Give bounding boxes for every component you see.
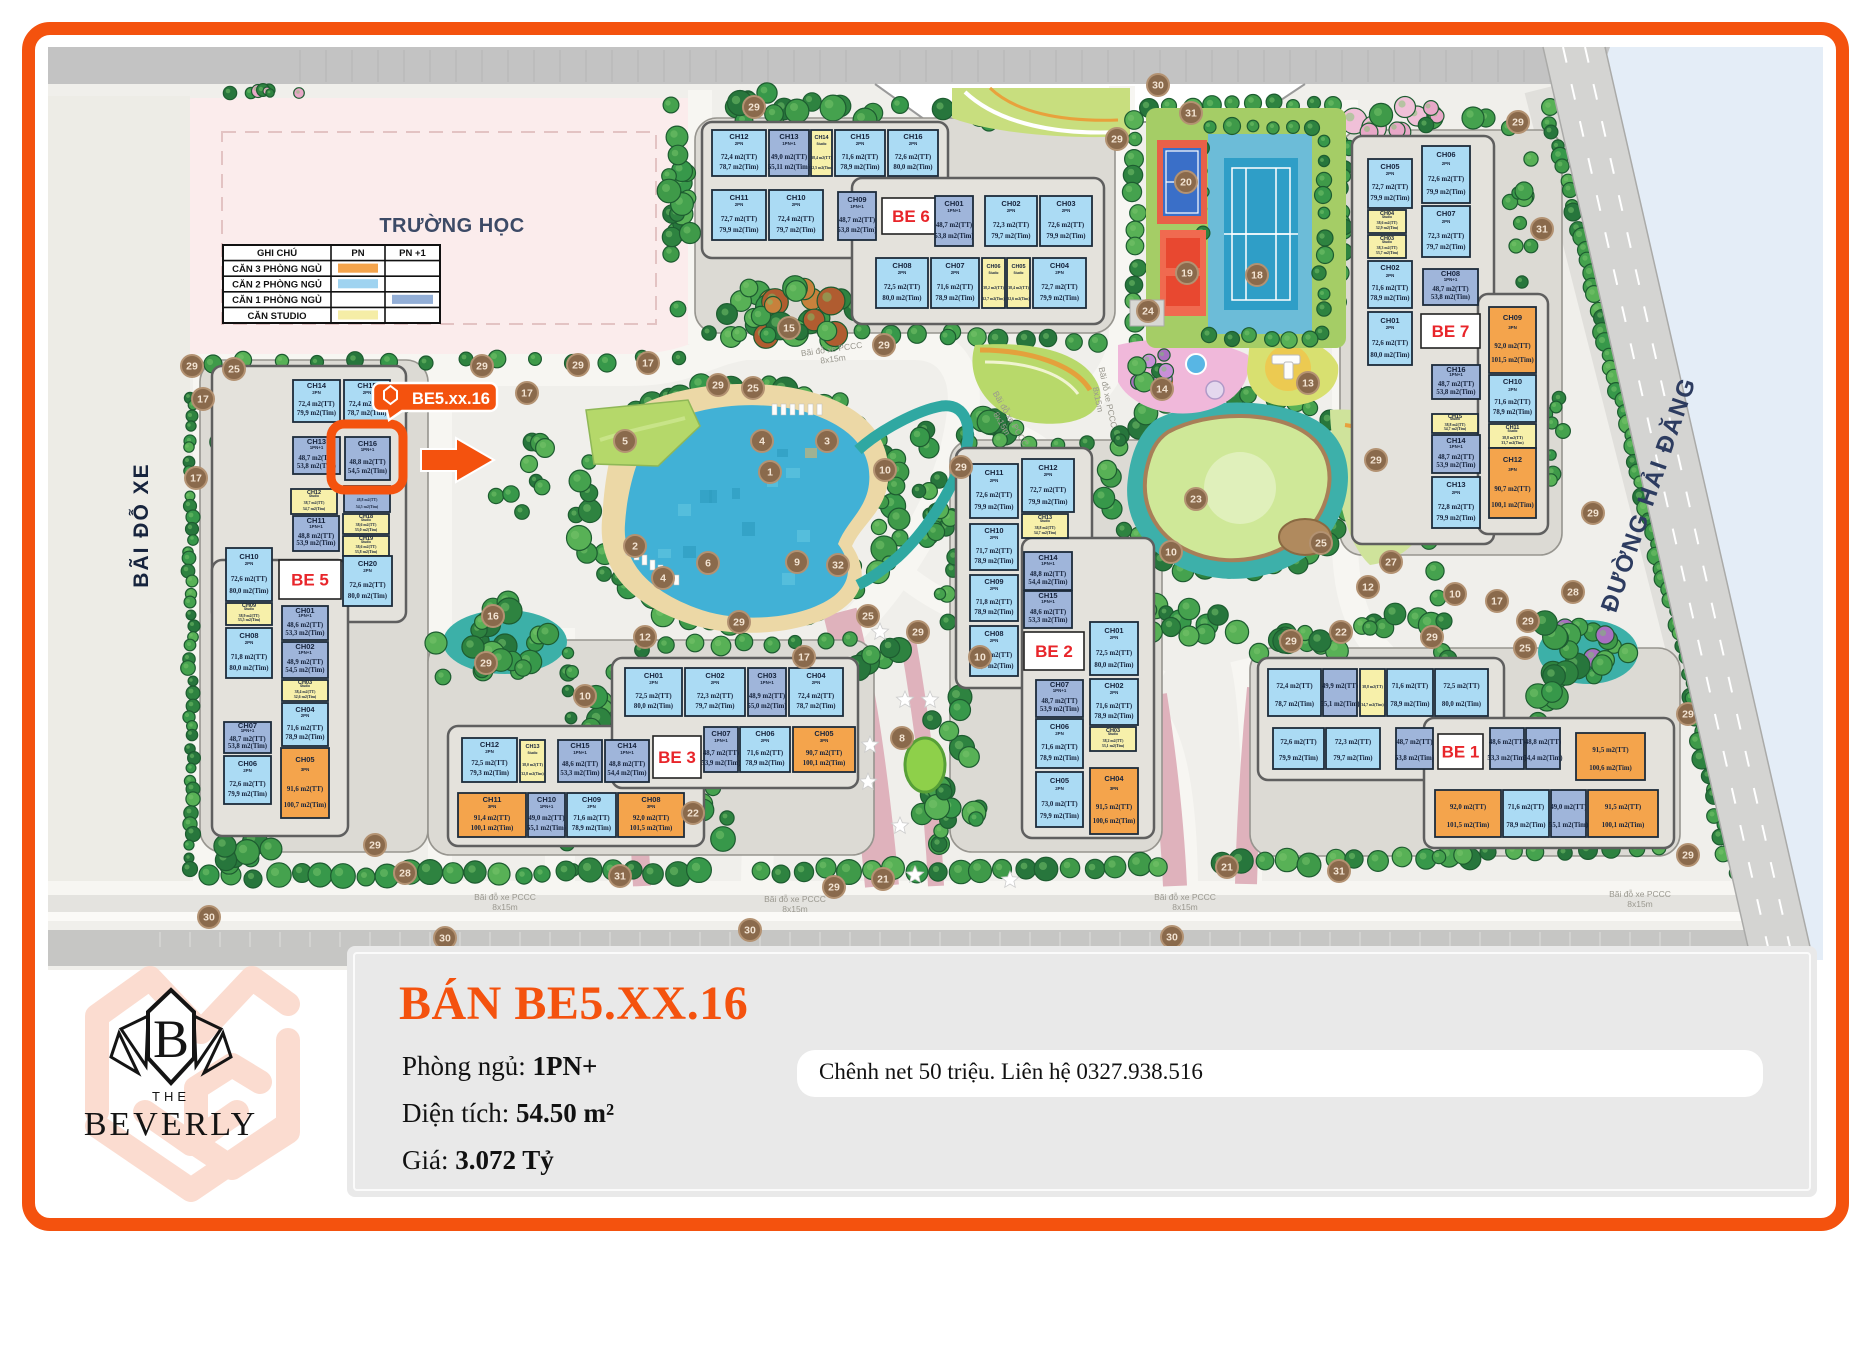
- svg-text:BE 1: BE 1: [1442, 743, 1480, 762]
- svg-text:10: 10: [974, 652, 986, 664]
- svg-text:91,6 m2(TT): 91,6 m2(TT): [287, 786, 323, 793]
- svg-text:72,4 m2(TT): 72,4 m2(TT): [298, 401, 334, 408]
- svg-text:48,7 m2(TT): 48,7 m2(TT): [936, 222, 972, 229]
- svg-text:48,7 m2(TT): 48,7 m2(TT): [839, 217, 875, 224]
- svg-text:1PN+1: 1PN+1: [361, 447, 375, 452]
- svg-text:CH05: CH05: [1380, 162, 1399, 171]
- svg-text:CH08: CH08: [641, 795, 660, 804]
- svg-text:53,3 m2(Tim): 53,3 m2(Tim): [1028, 617, 1067, 624]
- svg-text:32,8 m2(Tim): 32,8 m2(Tim): [521, 772, 544, 776]
- svg-text:2PN: 2PN: [245, 640, 254, 645]
- svg-text:71,6 m2(TT): 71,6 m2(TT): [1096, 703, 1132, 710]
- svg-text:Studio: Studio: [361, 540, 371, 544]
- svg-text:GHI CHÚ: GHI CHÚ: [257, 247, 297, 259]
- svg-text:49,0 m2(TT): 49,0 m2(TT): [771, 154, 807, 161]
- svg-text:29: 29: [480, 658, 492, 670]
- svg-text:2: 2: [632, 541, 638, 553]
- svg-text:72,3 m2(TT): 72,3 m2(TT): [1335, 739, 1371, 746]
- svg-text:54,5 m2(Tim): 54,5 m2(Tim): [285, 667, 324, 674]
- svg-text:38,3 m2(TT): 38,3 m2(TT): [1377, 246, 1398, 250]
- svg-text:CH12: CH12: [1038, 463, 1057, 472]
- svg-text:31: 31: [614, 871, 626, 883]
- svg-text:2PN: 2PN: [856, 141, 865, 146]
- svg-text:29: 29: [476, 361, 488, 373]
- svg-text:29: 29: [828, 882, 840, 894]
- svg-text:100,7 m2(Tim): 100,7 m2(Tim): [284, 802, 327, 809]
- svg-text:31: 31: [1333, 866, 1345, 878]
- svg-text:2PN: 2PN: [312, 390, 321, 395]
- svg-text:38,4 m2(TT): 38,4 m2(TT): [295, 690, 316, 694]
- svg-text:1PN+1: 1PN+1: [241, 728, 255, 733]
- svg-text:2PN: 2PN: [363, 568, 372, 573]
- svg-text:B: B: [153, 1009, 189, 1069]
- svg-text:48,7 m2(TT): 48,7 m2(TT): [1438, 454, 1474, 461]
- svg-text:101,5 m2(Tim): 101,5 m2(Tim): [1447, 822, 1490, 829]
- svg-text:79,9 m2(Tim): 79,9 m2(Tim): [1426, 189, 1465, 196]
- svg-text:78,9 m2(Tim): 78,9 m2(Tim): [1040, 755, 1079, 762]
- svg-text:21: 21: [877, 874, 889, 886]
- svg-text:48,6 m2(TT): 48,6 m2(TT): [1030, 609, 1066, 616]
- svg-text:CH10: CH10: [984, 526, 1003, 535]
- svg-text:38,7 m2(TT): 38,7 m2(TT): [304, 501, 325, 505]
- svg-text:17: 17: [197, 394, 209, 406]
- svg-text:CH09: CH09: [984, 577, 1003, 586]
- svg-text:80,0 m2(Tim): 80,0 m2(Tim): [1442, 701, 1481, 708]
- svg-text:Studio: Studio: [989, 271, 999, 275]
- svg-text:79,9 m2(Tim): 79,9 m2(Tim): [974, 504, 1013, 511]
- svg-text:49,0 m2(TT): 49,0 m2(TT): [528, 815, 564, 822]
- svg-text:38,6 m2(TT): 38,6 m2(TT): [356, 523, 377, 527]
- svg-text:48,6 m2(TT): 48,6 m2(TT): [1489, 739, 1525, 746]
- svg-text:38,6 m2(TT): 38,6 m2(TT): [1377, 221, 1398, 225]
- svg-text:8x15m: 8x15m: [782, 904, 808, 914]
- svg-text:CH11: CH11: [483, 795, 502, 804]
- svg-text:PN +1: PN +1: [399, 248, 426, 259]
- svg-text:55,1 m2(Tim): 55,1 m2(Tim): [527, 825, 566, 832]
- svg-text:72,7 m2(TT): 72,7 m2(TT): [721, 216, 757, 223]
- svg-text:Bãi đỗ xe PCCC: Bãi đỗ xe PCCC: [1154, 892, 1216, 902]
- svg-text:80,0 m2(Tim): 80,0 m2(Tim): [348, 593, 387, 600]
- svg-text:29: 29: [1512, 117, 1524, 129]
- svg-text:Studio: Studio: [1508, 429, 1518, 433]
- svg-text:CH04: CH04: [1050, 261, 1070, 270]
- svg-text:2PN: 2PN: [951, 270, 960, 275]
- svg-text:48,7 m2(TT): 48,7 m2(TT): [1438, 381, 1474, 388]
- svg-text:BE 5: BE 5: [291, 571, 329, 590]
- svg-text:2PN: 2PN: [1044, 472, 1053, 477]
- svg-text:BE5.xx.16: BE5.xx.16: [412, 390, 490, 408]
- svg-text:1PN+1: 1PN+1: [1444, 277, 1458, 282]
- svg-text:8x15m: 8x15m: [1172, 902, 1198, 912]
- svg-text:78,9 m2(Tim): 78,9 m2(Tim): [974, 558, 1013, 565]
- svg-text:78,9 m2(Tim): 78,9 m2(Tim): [840, 164, 879, 171]
- svg-text:CĂN STUDIO: CĂN STUDIO: [247, 311, 306, 322]
- svg-text:48,9 m2(TT): 48,9 m2(TT): [749, 693, 785, 700]
- svg-text:29: 29: [1370, 455, 1382, 467]
- svg-text:78,9 m2(Tim): 78,9 m2(Tim): [1390, 701, 1429, 708]
- svg-text:53,8 m2(Tim): 53,8 m2(Tim): [837, 227, 876, 234]
- svg-text:CH08: CH08: [239, 631, 258, 640]
- svg-text:4: 4: [759, 436, 765, 448]
- svg-text:BE 6: BE 6: [892, 207, 930, 226]
- svg-text:1PN+1: 1PN+1: [947, 208, 961, 213]
- svg-text:29: 29: [912, 627, 924, 639]
- svg-text:80,0 m2(Tim): 80,0 m2(Tim): [882, 295, 921, 302]
- svg-text:78,7 m2(Tim): 78,7 m2(Tim): [796, 703, 835, 710]
- svg-text:CH01: CH01: [1104, 626, 1123, 635]
- svg-text:92,0 m2(TT): 92,0 m2(TT): [1450, 804, 1486, 811]
- svg-text:38,0 m2(TT): 38,0 m2(TT): [522, 763, 543, 767]
- svg-text:30: 30: [1166, 932, 1178, 944]
- svg-text:8x15m: 8x15m: [1627, 899, 1653, 909]
- svg-text:3PN: 3PN: [820, 738, 829, 743]
- svg-text:78,9 m2(Tim): 78,9 m2(Tim): [1370, 295, 1409, 302]
- svg-text:79,7 m2(Tim): 79,7 m2(Tim): [1426, 244, 1465, 251]
- svg-text:48,8 m2(TT): 48,8 m2(TT): [357, 498, 378, 502]
- svg-text:2PN: 2PN: [1110, 635, 1119, 640]
- svg-text:2PN: 2PN: [1442, 161, 1451, 166]
- svg-text:79,9 m2(Tim): 79,9 m2(Tim): [1040, 813, 1079, 820]
- svg-text:92,0 m2(TT): 92,0 m2(TT): [1494, 343, 1530, 350]
- svg-text:1PN+1: 1PN+1: [760, 680, 774, 685]
- svg-text:79,9 m2(Tim): 79,9 m2(Tim): [719, 227, 758, 234]
- svg-text:THE: THE: [152, 1089, 190, 1104]
- svg-text:Bãi đỗ xe PCCC: Bãi đỗ xe PCCC: [474, 892, 536, 902]
- svg-text:100,1 m2(Tim): 100,1 m2(Tim): [1491, 502, 1534, 509]
- svg-text:29: 29: [1522, 616, 1534, 628]
- svg-text:CH05: CH05: [814, 729, 833, 738]
- svg-text:2PN: 2PN: [1062, 208, 1071, 213]
- svg-text:80,0 m2(Tim): 80,0 m2(Tim): [634, 703, 673, 710]
- svg-text:53,3 m2(Tim): 53,3 m2(Tim): [1487, 755, 1526, 762]
- svg-text:53,8 m2(Tim): 53,8 m2(Tim): [1436, 389, 1475, 396]
- svg-text:48,6 m2(TT): 48,6 m2(TT): [562, 761, 598, 768]
- svg-text:100,6 m2(Tim): 100,6 m2(Tim): [1589, 765, 1632, 772]
- svg-text:71,6 m2(TT): 71,6 m2(TT): [1372, 285, 1408, 292]
- svg-text:Studio: Studio: [244, 607, 254, 611]
- svg-text:3: 3: [824, 436, 830, 448]
- svg-text:1PN+1: 1PN+1: [310, 445, 324, 450]
- svg-text:3PN: 3PN: [301, 767, 310, 772]
- svg-text:91,4 m2(TT): 91,4 m2(TT): [474, 815, 510, 822]
- svg-text:71,6 m2(TT): 71,6 m2(TT): [573, 815, 609, 822]
- svg-text:CH02: CH02: [705, 671, 724, 680]
- svg-text:23: 23: [1190, 494, 1202, 506]
- svg-text:CH03: CH03: [1056, 199, 1075, 208]
- svg-text:CH08: CH08: [984, 629, 1003, 638]
- svg-text:CH10: CH10: [537, 795, 556, 804]
- svg-text:CH11: CH11: [985, 468, 1004, 477]
- svg-text:72,6 m2(TT): 72,6 m2(TT): [1048, 222, 1084, 229]
- svg-text:29: 29: [712, 380, 724, 392]
- svg-text:80,0 m2(Tim): 80,0 m2(Tim): [229, 588, 268, 595]
- svg-text:BE 2: BE 2: [1035, 642, 1073, 661]
- svg-text:10: 10: [1449, 589, 1461, 601]
- svg-text:78,7 m2(Tim): 78,7 m2(Tim): [719, 164, 758, 171]
- svg-text:38,4 m2(TT): 38,4 m2(TT): [1008, 286, 1029, 290]
- svg-text:72,5 m2(TT): 72,5 m2(TT): [1096, 650, 1132, 657]
- svg-text:CH14: CH14: [617, 741, 637, 750]
- svg-text:71,6 m2(TT): 71,6 m2(TT): [747, 750, 783, 757]
- svg-text:3PN: 3PN: [1508, 325, 1517, 330]
- svg-text:53,3 m2(Tim): 53,3 m2(Tim): [285, 630, 324, 637]
- svg-text:71,6 m2(TT): 71,6 m2(TT): [1508, 804, 1544, 811]
- svg-text:1PN+1: 1PN+1: [573, 750, 587, 755]
- svg-text:10: 10: [579, 691, 591, 703]
- svg-text:2PN: 2PN: [587, 804, 596, 809]
- svg-text:91,5 m2(TT): 91,5 m2(TT): [1096, 804, 1132, 811]
- svg-text:72,4 m2(TT): 72,4 m2(TT): [798, 693, 834, 700]
- svg-text:72,6 m2(TT): 72,6 m2(TT): [1280, 739, 1316, 746]
- svg-text:72,6 m2(TT): 72,6 m2(TT): [349, 582, 385, 589]
- svg-text:100,1 m2(Tim): 100,1 m2(Tim): [471, 825, 514, 832]
- svg-text:2PN: 2PN: [792, 202, 801, 207]
- svg-text:29: 29: [1682, 850, 1694, 862]
- svg-text:53,3 m2(Tim): 53,3 m2(Tim): [560, 770, 599, 777]
- svg-text:2PN: 2PN: [245, 561, 254, 566]
- svg-text:71,7 m2(TT): 71,7 m2(TT): [976, 548, 1012, 555]
- svg-text:CH10: CH10: [1503, 377, 1522, 386]
- svg-text:91,5 m2(TT): 91,5 m2(TT): [1592, 747, 1628, 754]
- svg-text:1PN+1: 1PN+1: [782, 141, 796, 146]
- svg-text:20: 20: [1180, 177, 1192, 189]
- svg-text:Studio: Studio: [528, 751, 538, 755]
- svg-text:48,8 m2(TT): 48,8 m2(TT): [1525, 739, 1561, 746]
- svg-text:2PN: 2PN: [990, 478, 999, 483]
- svg-text:PN: PN: [351, 248, 364, 259]
- svg-text:2PN: 2PN: [735, 202, 744, 207]
- svg-text:2PN: 2PN: [898, 270, 907, 275]
- svg-text:80,0 m2(Tim): 80,0 m2(Tim): [229, 665, 268, 672]
- svg-text:CH10: CH10: [786, 193, 805, 202]
- svg-text:CH02: CH02: [1380, 263, 1399, 272]
- svg-text:101,5 m2(Tim): 101,5 m2(Tim): [1491, 357, 1534, 364]
- svg-text:1: 1: [767, 467, 773, 479]
- svg-text:5: 5: [622, 436, 628, 448]
- svg-text:CH03: CH03: [757, 671, 776, 680]
- svg-text:CH11: CH11: [730, 193, 749, 202]
- svg-text:79,9 m2(Tim): 79,9 m2(Tim): [1040, 295, 1079, 302]
- svg-text:1PN+1: 1PN+1: [850, 204, 864, 209]
- svg-text:78,9 m2(Tim): 78,9 m2(Tim): [285, 734, 324, 741]
- svg-text:29: 29: [955, 462, 967, 474]
- svg-text:30: 30: [439, 933, 451, 945]
- svg-text:38,4 m2(TT): 38,4 m2(TT): [811, 156, 832, 160]
- svg-text:73,0 m2(TT): 73,0 m2(TT): [1041, 801, 1077, 808]
- svg-text:72,7 m2(TT): 72,7 m2(TT): [1030, 487, 1066, 494]
- svg-text:79,7 m2(Tim): 79,7 m2(Tim): [695, 703, 734, 710]
- svg-text:24: 24: [1142, 306, 1154, 318]
- svg-text:CH07: CH07: [945, 261, 964, 270]
- svg-text:78,9 m2(Tim): 78,9 m2(Tim): [974, 609, 1013, 616]
- svg-text:30: 30: [744, 925, 756, 937]
- svg-text:90,7 m2(TT): 90,7 m2(TT): [806, 750, 842, 757]
- svg-text:25: 25: [1315, 538, 1327, 550]
- svg-text:CĂN 2 PHÒNG NGỦ: CĂN 2 PHÒNG NGỦ: [232, 279, 322, 291]
- svg-text:2PN: 2PN: [1055, 786, 1064, 791]
- svg-text:29: 29: [1111, 134, 1123, 146]
- svg-text:8: 8: [899, 733, 905, 745]
- svg-text:72,6 m2(TT): 72,6 m2(TT): [229, 781, 265, 788]
- svg-text:2PN: 2PN: [735, 141, 744, 146]
- svg-text:100,1 m2(Tim): 100,1 m2(Tim): [1602, 822, 1645, 829]
- svg-text:72,3 m2(TT): 72,3 m2(TT): [697, 693, 733, 700]
- svg-text:72,3 m2(TT): 72,3 m2(TT): [1428, 233, 1464, 240]
- svg-text:27: 27: [1385, 557, 1397, 569]
- svg-text:79,7 m2(Tim): 79,7 m2(Tim): [776, 227, 815, 234]
- svg-text:2PN: 2PN: [1452, 490, 1461, 495]
- svg-text:17: 17: [642, 358, 654, 370]
- svg-text:3PN: 3PN: [488, 804, 497, 809]
- svg-text:Studio: Studio: [817, 142, 827, 146]
- svg-text:17: 17: [798, 652, 810, 664]
- svg-text:2PN: 2PN: [1055, 731, 1064, 736]
- svg-text:38,8 m2(TT): 38,8 m2(TT): [1362, 685, 1383, 689]
- svg-text:78,9 m2(Tim): 78,9 m2(Tim): [1506, 822, 1545, 829]
- svg-text:32,6 m2(Tim): 32,6 m2(Tim): [1007, 297, 1030, 301]
- svg-text:CH06: CH06: [986, 264, 1000, 270]
- svg-text:CH13: CH13: [779, 132, 798, 141]
- svg-text:9: 9: [794, 557, 800, 569]
- svg-text:2PN: 2PN: [649, 680, 658, 685]
- svg-text:2PN: 2PN: [909, 141, 918, 146]
- svg-text:72,4 m2(TT): 72,4 m2(TT): [721, 154, 757, 161]
- svg-text:71,6 m2(TT): 71,6 m2(TT): [1041, 744, 1077, 751]
- svg-text:53,9 m2(Tim): 53,9 m2(Tim): [296, 540, 335, 547]
- svg-text:CH13: CH13: [525, 744, 539, 750]
- svg-text:32,5 m2(Tim): 32,5 m2(Tim): [810, 166, 833, 170]
- svg-text:1PN+1: 1PN+1: [1449, 372, 1463, 377]
- svg-text:CĂN 1 PHÒNG NGỦ: CĂN 1 PHÒNG NGỦ: [232, 294, 322, 306]
- svg-text:29: 29: [369, 840, 381, 852]
- svg-text:49,9 m2(TT): 49,9 m2(TT): [1322, 683, 1358, 690]
- svg-text:2PN: 2PN: [1442, 219, 1451, 224]
- svg-text:6: 6: [705, 558, 711, 570]
- svg-text:29: 29: [733, 617, 745, 629]
- svg-text:48,8 m2(TT): 48,8 m2(TT): [298, 533, 334, 540]
- svg-text:Studio: Studio: [1014, 271, 1024, 275]
- svg-text:79,9 m2(Tim): 79,9 m2(Tim): [297, 410, 336, 417]
- svg-text:78,7 m2(Tim): 78,7 m2(Tim): [1275, 701, 1314, 708]
- svg-text:CH12: CH12: [480, 740, 499, 749]
- svg-text:34,7 m2(Tim): 34,7 m2(Tim): [1034, 531, 1057, 535]
- svg-text:79,9 m2(Tim): 79,9 m2(Tim): [228, 791, 267, 798]
- svg-text:28: 28: [1567, 587, 1579, 599]
- svg-text:12: 12: [639, 632, 651, 644]
- svg-text:72,6 m2(TT): 72,6 m2(TT): [976, 492, 1012, 499]
- svg-text:80,0 m2(Tim): 80,0 m2(Tim): [1094, 662, 1133, 669]
- svg-text:CH06: CH06: [238, 759, 257, 768]
- svg-text:72,6 m2(TT): 72,6 m2(TT): [895, 154, 931, 161]
- svg-text:29: 29: [1587, 508, 1599, 520]
- svg-text:CH06: CH06: [1050, 722, 1069, 731]
- svg-text:71,8 m2(TT): 71,8 m2(TT): [976, 599, 1012, 606]
- svg-text:32,6 m2(Tim): 32,6 m2(Tim): [294, 695, 317, 699]
- svg-text:25: 25: [862, 611, 874, 623]
- svg-text:CH12: CH12: [729, 132, 748, 141]
- svg-text:CH10: CH10: [239, 552, 258, 561]
- svg-text:CH05: CH05: [1011, 264, 1025, 270]
- svg-text:BEVERLY: BEVERLY: [84, 1106, 258, 1143]
- svg-text:21: 21: [1221, 862, 1233, 874]
- svg-text:29: 29: [572, 360, 584, 372]
- svg-text:2PN: 2PN: [363, 390, 372, 395]
- svg-text:10: 10: [1165, 547, 1177, 559]
- svg-text:72,6 m2(TT): 72,6 m2(TT): [1428, 176, 1464, 183]
- svg-text:CH02: CH02: [1001, 199, 1020, 208]
- svg-text:29: 29: [1426, 632, 1438, 644]
- svg-text:32,9 m2(Tim): 32,9 m2(Tim): [1376, 226, 1399, 230]
- svg-text:72,4 m2(TT): 72,4 m2(TT): [778, 216, 814, 223]
- svg-text:72,4 m2(TT): 72,4 m2(TT): [1276, 683, 1312, 690]
- svg-text:1PN+1: 1PN+1: [298, 613, 312, 618]
- svg-text:2PN: 2PN: [1055, 270, 1064, 275]
- svg-text:48,7 m2(TT): 48,7 m2(TT): [703, 750, 739, 757]
- svg-text:53,8 m2(Tim): 53,8 m2(Tim): [1431, 294, 1470, 301]
- svg-text:53,9 m2(Tim): 53,9 m2(Tim): [1436, 462, 1475, 469]
- svg-text:Studio: Studio: [300, 684, 310, 688]
- svg-text:72,7 m2(TT): 72,7 m2(TT): [1372, 184, 1408, 191]
- svg-text:54,5 m2(Tim): 54,5 m2(Tim): [356, 505, 379, 509]
- svg-text:30: 30: [1152, 80, 1164, 92]
- svg-text:CH06: CH06: [1436, 150, 1455, 159]
- svg-text:2PN: 2PN: [1386, 171, 1395, 176]
- svg-text:CH07: CH07: [711, 729, 730, 738]
- svg-text:34,7 m2(Tim): 34,7 m2(Tim): [303, 507, 326, 511]
- svg-text:53,8 m2(Tim): 53,8 m2(Tim): [934, 233, 973, 240]
- svg-text:1PN+1: 1PN+1: [714, 738, 728, 743]
- svg-text:Bãi đỗ xe PCCC: Bãi đỗ xe PCCC: [764, 894, 826, 904]
- svg-text:BE 3: BE 3: [658, 748, 696, 767]
- svg-text:29: 29: [1285, 636, 1297, 648]
- svg-text:25: 25: [747, 383, 759, 395]
- svg-text:71,6 m2(TT): 71,6 m2(TT): [937, 284, 973, 291]
- svg-text:72,5 m2(TT): 72,5 m2(TT): [884, 284, 920, 291]
- svg-text:71,6 m2(TT): 71,6 m2(TT): [842, 154, 878, 161]
- svg-text:29: 29: [1682, 709, 1694, 721]
- svg-text:33,5 m2(Tim): 33,5 m2(Tim): [238, 618, 261, 622]
- svg-text:TRƯỜNG HỌC: TRƯỜNG HỌC: [379, 213, 524, 237]
- svg-text:BÃI ĐỖ XE: BÃI ĐỖ XE: [129, 462, 153, 587]
- svg-text:CH04: CH04: [1104, 774, 1124, 783]
- svg-text:2PN: 2PN: [485, 749, 494, 754]
- svg-text:101,5 m2(Tim): 101,5 m2(Tim): [630, 825, 673, 832]
- svg-text:CH09: CH09: [1503, 313, 1522, 322]
- svg-text:10: 10: [879, 465, 891, 477]
- svg-text:29: 29: [878, 340, 890, 352]
- svg-text:29: 29: [748, 102, 760, 114]
- svg-text:55,11 m2(Tim): 55,11 m2(Tim): [768, 164, 810, 171]
- svg-text:32,7 m2(Tim): 32,7 m2(Tim): [982, 297, 1005, 301]
- svg-text:72,5 m2(TT): 72,5 m2(TT): [471, 760, 507, 767]
- svg-text:79,9 m2(Tim): 79,9 m2(Tim): [1279, 755, 1318, 762]
- svg-text:4: 4: [660, 573, 666, 585]
- svg-text:Studio: Studio: [1382, 240, 1392, 244]
- svg-text:54,4 m2(Tim): 54,4 m2(Tim): [1523, 755, 1562, 762]
- svg-text:13: 13: [1302, 378, 1314, 390]
- svg-text:CH05: CH05: [295, 755, 314, 764]
- svg-text:Studio: Studio: [361, 518, 371, 522]
- svg-text:18: 18: [1251, 270, 1263, 282]
- svg-text:1PN+1: 1PN+1: [1053, 688, 1067, 693]
- svg-text:CH05: CH05: [1050, 776, 1069, 785]
- svg-text:54,4 m2(Tim): 54,4 m2(Tim): [607, 770, 646, 777]
- svg-text:71,6 m2(TT): 71,6 m2(TT): [1494, 399, 1530, 406]
- svg-text:14: 14: [1156, 384, 1168, 396]
- svg-text:16: 16: [487, 611, 499, 623]
- svg-text:17: 17: [1491, 596, 1503, 608]
- svg-text:2PN: 2PN: [1508, 387, 1517, 392]
